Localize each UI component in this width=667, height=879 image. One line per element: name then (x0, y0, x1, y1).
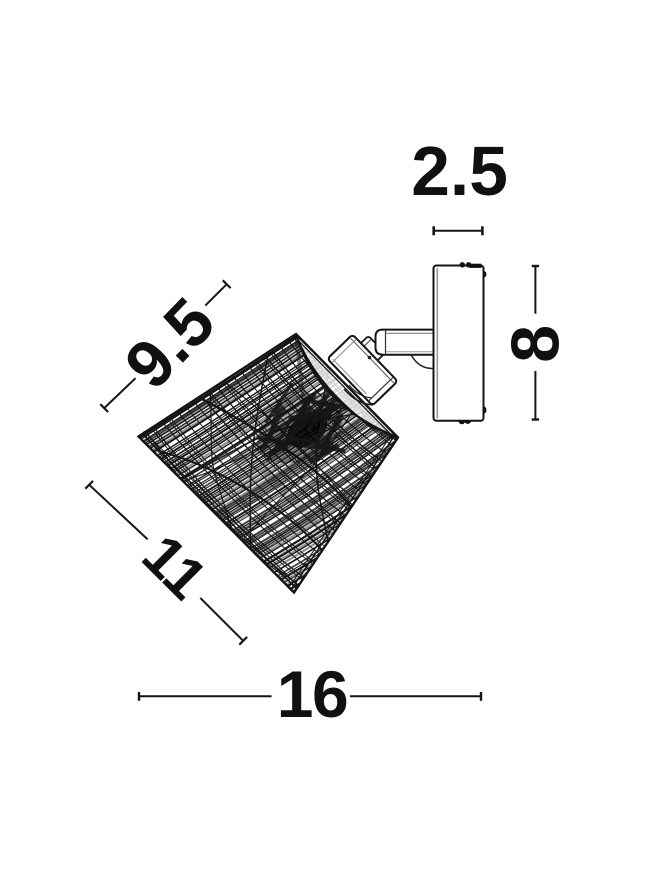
svg-text:8: 8 (497, 325, 573, 363)
svg-text:2.5: 2.5 (411, 132, 508, 210)
svg-text:16: 16 (277, 657, 347, 731)
